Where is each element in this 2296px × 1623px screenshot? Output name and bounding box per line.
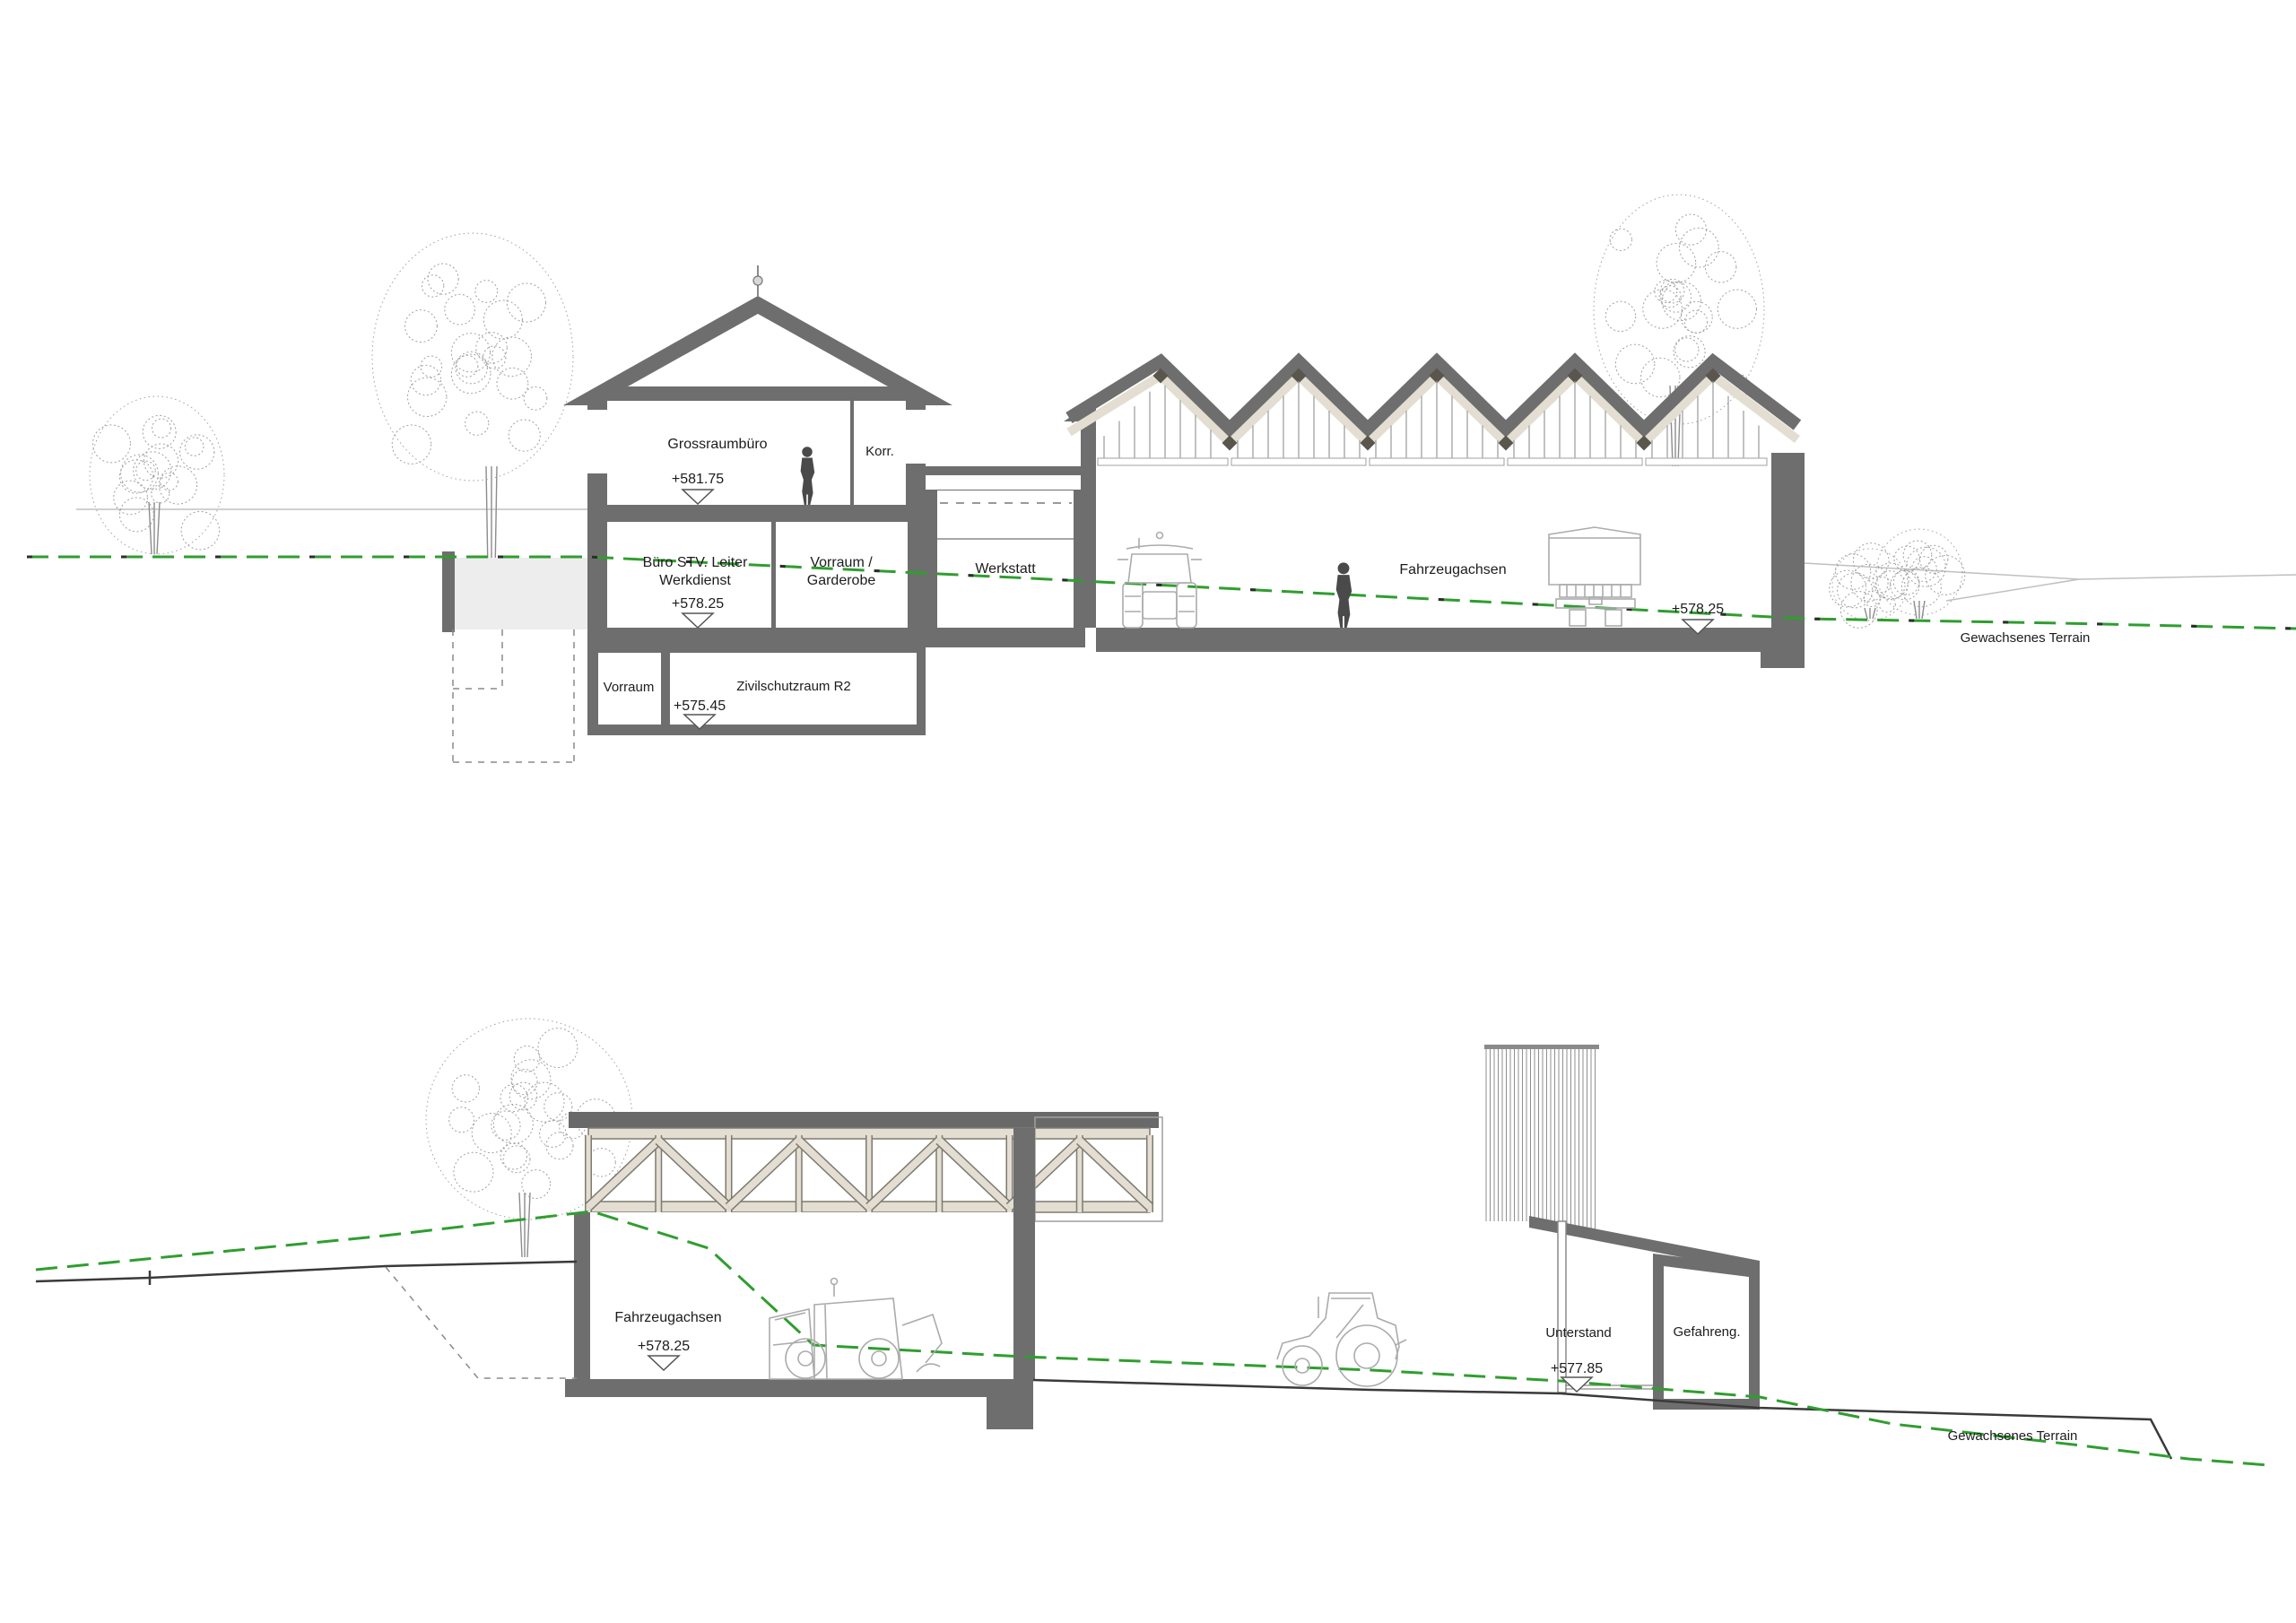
tree-foliage	[1610, 229, 1631, 250]
tree-foliage	[451, 334, 490, 372]
tree-foliage	[493, 1105, 533, 1144]
glazing-sill-band	[1508, 458, 1642, 465]
background-line	[1946, 579, 2079, 601]
sawtooth-roof	[1069, 361, 1797, 465]
drawing-canvas: Grossraumbüro +581.75 Korr. Büro STV. Le…	[0, 0, 2296, 1623]
tree-foliage	[392, 425, 430, 464]
tree-trunk	[1922, 601, 1925, 619]
underground-dashed-outline	[453, 629, 574, 762]
finial-ball-icon	[753, 276, 762, 285]
garage-foundation	[987, 1397, 1033, 1429]
tree-foliage	[1718, 290, 1756, 328]
terrain-lines	[27, 557, 2296, 1465]
truss-diagonal	[729, 1141, 799, 1207]
tree-foliage	[500, 1143, 526, 1169]
glazing-sill-band	[1370, 458, 1504, 465]
tree-canopy-outline	[90, 396, 224, 554]
tree-foliage	[159, 466, 196, 504]
tree-foliage	[457, 355, 478, 377]
tree-trunk	[527, 1193, 530, 1257]
tree-foliage	[483, 300, 522, 339]
glazing-sill-band	[1098, 458, 1228, 465]
tree-foliage	[422, 275, 443, 297]
tree-foliage	[1838, 573, 1873, 608]
tower-cap	[1484, 1045, 1599, 1049]
tree-foliage	[407, 378, 446, 416]
tree-foliage	[475, 281, 498, 303]
garage-left-wall	[574, 1212, 592, 1379]
glazing-sill-band	[1231, 458, 1366, 465]
elevation-garage: +578.25	[638, 1339, 690, 1354]
truss-diagonal	[1080, 1141, 1150, 1207]
label-gefahrengut: Gefahreng.	[1673, 1324, 1740, 1340]
tree-foliage	[1830, 570, 1866, 607]
label-buero-stv-2: Werkdienst	[659, 573, 731, 588]
tree-foliage	[538, 1028, 578, 1068]
tree-foliage	[161, 473, 178, 490]
label-gewachsenes-terrain-top: Gewachsenes Terrain	[1961, 630, 2091, 646]
werkstatt-connector	[926, 466, 1085, 647]
tree-foliage	[465, 412, 489, 435]
label-buero-stv-1: Büro STV. Leiter	[643, 555, 748, 570]
vegetation	[90, 195, 1965, 1257]
sunken-courtyard	[455, 558, 589, 629]
label-werkstatt: Werkstatt	[975, 561, 1036, 577]
tree-foliage	[1681, 301, 1712, 333]
tree-trunk	[1865, 608, 1867, 619]
tree-foliage	[1891, 570, 1919, 599]
tree-foliage	[472, 1114, 511, 1153]
tree-trunk	[1873, 608, 1875, 619]
garage-roof-slab	[569, 1112, 1159, 1128]
tree-foliage	[121, 455, 159, 492]
tree-foliage	[492, 337, 532, 377]
tree-foliage	[454, 1152, 493, 1192]
roof-truss	[588, 1128, 1150, 1212]
label-unterstand: Unterstand	[1545, 1325, 1611, 1341]
garage-interior	[590, 1212, 1013, 1379]
label-vorraum-garderobe-1: Vorraum /	[810, 555, 873, 570]
tree-trunk	[519, 1193, 522, 1257]
elevation-unterstand: +577.85	[1551, 1361, 1603, 1376]
tree-foliage	[514, 1046, 540, 1072]
terrain-solid-bottom-left	[36, 1262, 577, 1281]
tree-trunk	[1914, 601, 1917, 619]
label-vorraum-garderobe-2: Garderobe	[807, 573, 876, 588]
label-fahrzeugachsen-hall: Fahrzeugachsen	[1399, 562, 1506, 577]
tree-foliage	[544, 1093, 572, 1121]
tree-foliage	[524, 386, 547, 410]
tree-foliage	[1643, 290, 1683, 329]
tree-foliage	[411, 365, 440, 395]
tree-top-left-small	[90, 396, 224, 554]
tree-foliage	[136, 461, 155, 480]
tree-foliage	[1840, 592, 1877, 629]
label-fahrzeugachsen-garage: Fahrzeugachsen	[614, 1310, 721, 1325]
tree-foliage	[185, 438, 204, 456]
truss-diagonal	[799, 1141, 869, 1207]
tree-foliage	[1894, 546, 1919, 571]
tree-foliage	[1615, 344, 1654, 383]
tree-foliage	[152, 419, 171, 438]
tree-foliage	[179, 435, 213, 469]
bush-top-right-1	[1830, 543, 1909, 629]
hall-footing	[1761, 652, 1805, 668]
tree-foliage	[525, 1082, 564, 1122]
tree-foliage	[1675, 338, 1699, 361]
connector-roof-gap	[926, 475, 1085, 490]
tree-foliage	[1853, 543, 1889, 579]
tree-foliage	[452, 1075, 479, 1102]
background-line	[2079, 575, 2296, 579]
tree-foliage	[1674, 336, 1705, 368]
tree-foliage	[476, 333, 507, 363]
truss-diagonal	[588, 1141, 658, 1207]
bush-top-right-2	[1876, 529, 1965, 619]
tree-foliage	[509, 1082, 537, 1110]
slat-tower	[1486, 1049, 1596, 1237]
tree-foliage	[143, 444, 178, 478]
elevation-hall: +578.25	[1672, 602, 1724, 617]
window-right	[906, 410, 926, 464]
tree-foliage	[92, 425, 130, 463]
shelter-section	[1484, 1045, 1760, 1410]
tree-foliage	[522, 1170, 551, 1199]
truss-diagonal	[869, 1141, 939, 1207]
garage-right-wall	[1013, 1128, 1035, 1379]
tree-foliage	[1851, 564, 1888, 601]
label-vorraum-ug: Vorraum	[604, 680, 655, 695]
tree-foliage	[483, 346, 506, 369]
tree-foliage	[509, 420, 540, 451]
tree-canopy-outline	[372, 233, 573, 481]
garage-floor-slab	[565, 1379, 1033, 1397]
hall-interior	[1096, 466, 1771, 628]
office-building-section	[442, 265, 952, 762]
tree-foliage	[1605, 301, 1635, 331]
tree-foliage	[1903, 541, 1932, 569]
label-grossraumbuero: Grossraumbüro	[667, 437, 767, 452]
tree-foliage	[449, 1107, 474, 1133]
tree-foliage	[1657, 244, 1696, 283]
window-left	[587, 410, 607, 473]
glazing-sill-band	[1646, 458, 1767, 465]
elevation-grossraumbuero: +581.75	[672, 472, 724, 487]
elevation-zivilschutzraum: +575.45	[674, 699, 726, 714]
hall-right-wall	[1771, 453, 1805, 652]
excavation-dashed	[386, 1267, 577, 1378]
tree-foliage	[445, 294, 475, 325]
tree-foliage	[512, 1069, 537, 1094]
tree-foliage	[546, 1133, 573, 1159]
label-zivilschutzraum: Zivilschutzraum R2	[736, 679, 851, 694]
tree-foliage	[119, 460, 152, 493]
tree-foliage	[428, 264, 458, 294]
tree-foliage	[1705, 252, 1735, 282]
truss-diagonal	[658, 1141, 728, 1207]
retaining-wall	[442, 551, 455, 632]
room-werkstatt	[937, 490, 1074, 628]
room-grossraumbuero	[607, 401, 850, 505]
tree-foliage	[1680, 228, 1719, 267]
label-korridor: Korr.	[865, 444, 894, 459]
truss-diagonal	[939, 1141, 1009, 1207]
tree-top-right	[1594, 195, 1764, 466]
terrain-green-bottom	[36, 1211, 2269, 1465]
section-drawing-sheet: Grossraumbüro +581.75 Korr. Büro STV. Le…	[0, 0, 2296, 1623]
label-gewachsenes-terrain-bottom: Gewachsenes Terrain	[1948, 1428, 2078, 1444]
terrain-solid-bottom-right	[1033, 1380, 2171, 1459]
elevation-buero-stv: +578.25	[672, 596, 724, 612]
tree-foliage	[451, 354, 491, 394]
tree-foliage	[181, 511, 219, 549]
tree-foliage	[405, 310, 438, 343]
tree-foliage	[540, 1121, 567, 1148]
hall-left-wall	[1081, 408, 1096, 628]
